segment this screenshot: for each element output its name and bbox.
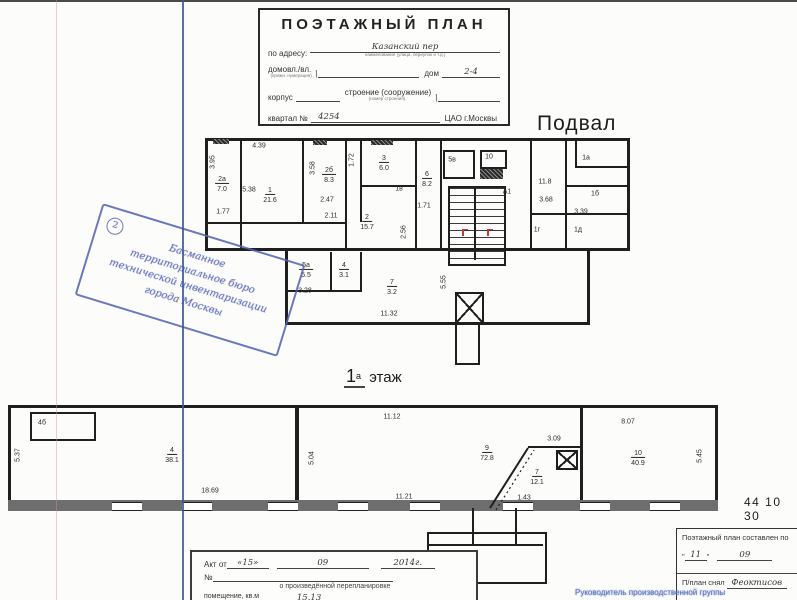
blue-fold-line: [182, 0, 184, 600]
dim-label: 3.58: [310, 161, 317, 175]
room-5v-outline: [443, 150, 475, 179]
wall-hatch: [371, 140, 393, 145]
dim-label: 3.28: [298, 288, 312, 295]
dim-label: 3.39: [574, 209, 588, 216]
title-block: ПОЭТАЖНЫЙ ПЛАН по адресу: Казанский пер …: [258, 8, 510, 126]
dim-label: 4б: [38, 420, 46, 427]
act-box: Акт от «15» 09 2014г. № о произведённой …: [190, 550, 478, 600]
window: [650, 502, 680, 511]
closet-outline: [30, 412, 96, 441]
dim-label: 2.47: [320, 197, 334, 204]
reference-number: 44 10 30: [744, 495, 797, 523]
room-label: 972.8: [480, 438, 494, 462]
dim-label: 11.21: [396, 494, 413, 501]
act-caption: о произведённой перепланировке: [204, 583, 466, 590]
scan-fold-line: [56, 0, 57, 600]
surveyor-label: П/план снял: [682, 578, 725, 587]
window: [112, 502, 142, 511]
window: [182, 502, 212, 511]
district-label: ЦАО г.Москвы: [445, 114, 497, 123]
bti-stamp: 2 Басманное территориальное бюро техниче…: [75, 203, 306, 357]
footer-month: 09: [717, 550, 772, 561]
window: [410, 502, 440, 511]
window: [338, 502, 368, 511]
dim-label: 8.07: [621, 419, 635, 426]
room-label: 73.2: [387, 272, 397, 296]
dim-label: 11.12: [384, 414, 401, 421]
dim-label: 1б: [591, 191, 599, 198]
room-label: 438.1: [165, 440, 179, 464]
dim-label: 5.45: [697, 449, 704, 463]
dim-label: 11.32: [381, 311, 398, 318]
floor1-title: 1а этаж: [344, 366, 402, 387]
act-area-label: помещение, кв.м: [204, 593, 259, 600]
dim-label: 3.95: [210, 155, 217, 169]
dom-label: дом: [424, 69, 439, 78]
dim-label: 2.11: [324, 213, 337, 220]
dim-label: 1а: [582, 155, 590, 162]
red-mark: [462, 229, 468, 236]
dim-label: 5.55: [441, 275, 448, 289]
dim-label: 1.71: [417, 203, 431, 210]
act-number-label: №: [204, 573, 213, 582]
act-area-value: 15.13: [279, 593, 339, 600]
act-month: 09: [277, 558, 369, 569]
dim-label: 1.77: [216, 209, 230, 216]
footer-row1: Поэтажный план составлен по: [682, 533, 797, 542]
dim-label: 10: [485, 154, 493, 161]
dim-label: 3.68: [539, 197, 553, 204]
scan-edge-line: [0, 0, 797, 2]
dim-label: 5.37: [15, 448, 22, 462]
dim-label: 5.38: [242, 187, 256, 194]
basement-title: Подвал: [537, 112, 616, 136]
room-label: 712.1: [530, 462, 544, 486]
dim-label: 11.8: [538, 179, 551, 186]
dim-label: 1.43: [517, 495, 531, 502]
footer-day: 11: [685, 550, 707, 561]
dim-label: 2.56: [401, 225, 408, 239]
dom-value: 2-4: [442, 67, 500, 78]
address-caption: наименование (улица, переулок и т.д.): [310, 53, 500, 58]
kvartal-label: квартал №: [268, 114, 308, 123]
dim-label: 4.39: [252, 143, 266, 150]
dim-label: 18.69: [201, 488, 219, 495]
room-label: 2б8.3: [322, 160, 336, 184]
dim-label: 1.72: [349, 153, 356, 167]
document-title: ПОЭТАЖНЫЙ ПЛАН: [268, 16, 500, 33]
dim-label: 5.04: [309, 451, 316, 465]
stroenie-caption: (номер строения): [340, 97, 434, 102]
korpus-label: корпус: [268, 93, 293, 102]
dim-label: 1д: [574, 227, 582, 234]
room-label: 43.1: [339, 255, 349, 279]
dim-label: 3.09: [547, 436, 561, 443]
room-label: 68.2: [422, 164, 432, 188]
kvartal-value: 4254: [311, 112, 347, 123]
basement-shaft-symbol: [455, 292, 484, 324]
room-label: 2а7.0: [215, 169, 229, 193]
room-label: 121.6: [263, 180, 277, 204]
wall-hatch: [213, 139, 229, 144]
wall-hatch: [313, 140, 327, 145]
floor1-shaft-symbol: [556, 450, 578, 470]
window: [580, 502, 610, 511]
act-day: «15»: [227, 558, 269, 569]
blue-signature-line: Руководитель производственной группы: [575, 588, 797, 597]
act-label: Акт от: [204, 560, 227, 569]
domvl-caption: (прежн. нумерация): [268, 74, 314, 79]
dim-label: А1: [503, 189, 512, 196]
dim-label: 5в: [448, 157, 456, 164]
dim-label: 1в: [395, 186, 403, 193]
red-mark: [487, 229, 493, 236]
duct-hatch: [480, 169, 503, 179]
dim-label: 1г: [534, 227, 540, 234]
act-year: 2014г.: [381, 558, 435, 569]
room-label: 215.7: [360, 207, 374, 231]
address-label: по адресу:: [268, 49, 307, 58]
basement-staircase: [448, 186, 506, 266]
room-10-outline: [480, 150, 507, 169]
room-label: 36.0: [379, 148, 389, 172]
scanned-floor-plan-document: ПОЭТАЖНЫЙ ПЛАН по адресу: Казанский пер …: [0, 0, 797, 600]
room-label: 1040.9: [631, 443, 645, 467]
window: [268, 502, 298, 511]
